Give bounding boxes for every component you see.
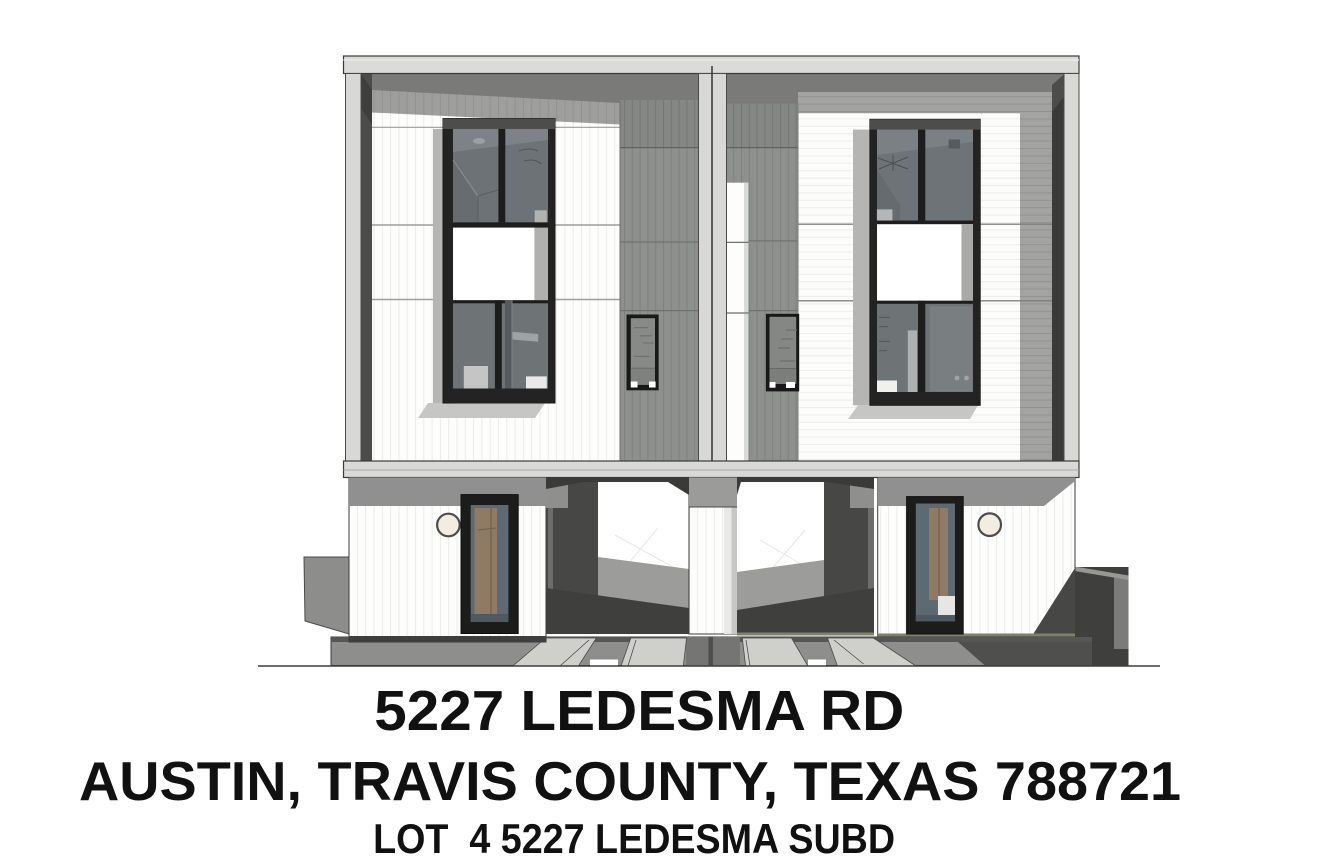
svg-text:5227 LEDESMA RD: 5227 LEDESMA RD (374, 679, 904, 743)
svg-text:LOT 4 5227 LEDESMA SUBD: LOT 4 5227 LEDESMA SUBD (373, 815, 895, 862)
svg-text:AUSTIN, TRAVIS COUNTY, TEXAS 7: AUSTIN, TRAVIS COUNTY, TEXAS 788721 (79, 751, 1181, 812)
